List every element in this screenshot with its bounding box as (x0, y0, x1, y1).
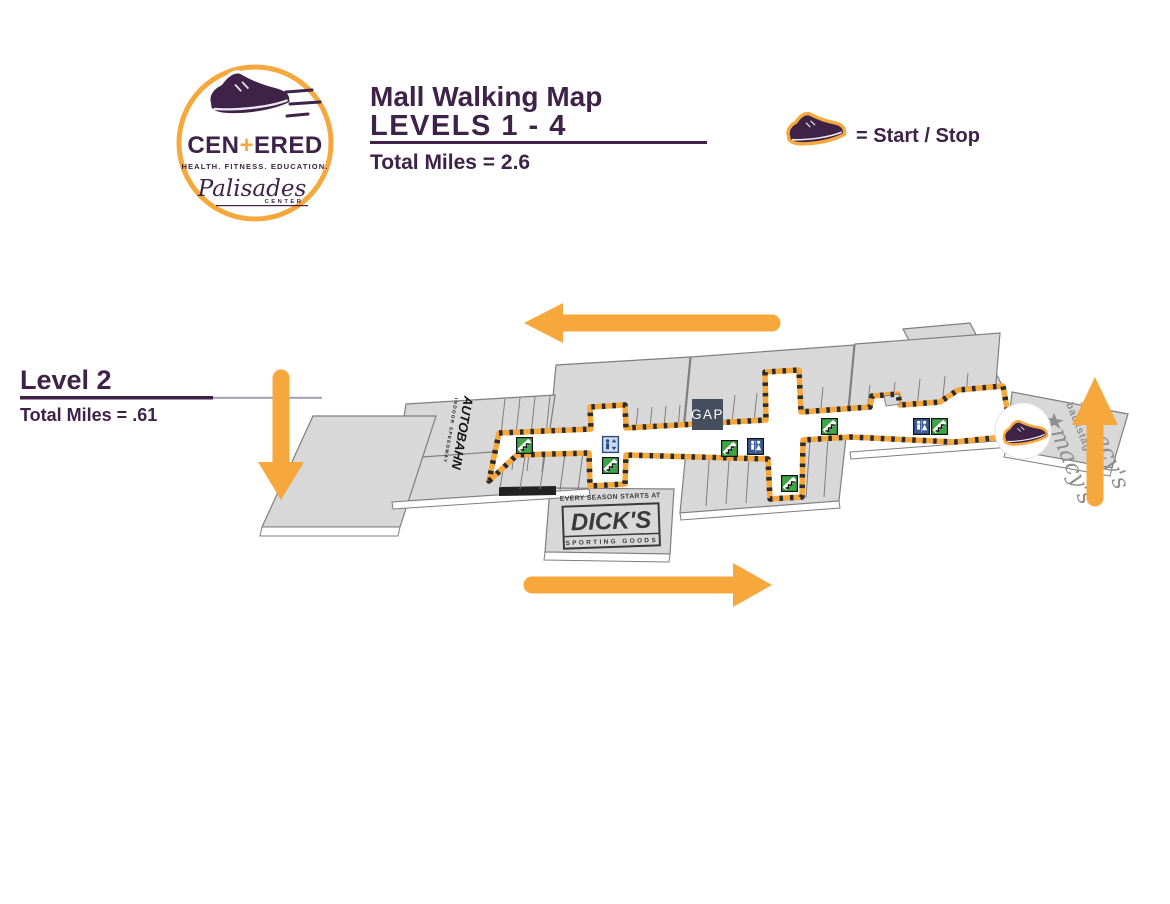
legend: = Start / Stop (788, 111, 980, 147)
arrow-left (524, 303, 772, 343)
title-divider (370, 141, 707, 144)
page-subtitle: LEVELS 1 - 4 (370, 110, 567, 142)
svg-text:DICK'S: DICK'S (570, 507, 651, 537)
start-stop-marker (995, 403, 1051, 459)
svg-text:GAP: GAP (691, 407, 724, 422)
escalator-icon (932, 419, 948, 435)
escalator-icon (722, 441, 738, 457)
page-title: Mall Walking Map (370, 81, 602, 112)
total-miles-overall: Total Miles = 2.6 (370, 151, 530, 174)
elevator-icon (603, 437, 619, 453)
mall-walking-map-page: CEN+ERED HEALTH. FITNESS. EDUCATION. Pal… (0, 0, 1170, 904)
brand-name: CEN+ERED (187, 132, 322, 159)
escalator-icon (517, 438, 533, 454)
map-edge-strip (260, 527, 400, 536)
centered-logo: CEN+ERED HEALTH. FITNESS. EDUCATION. Pal… (179, 67, 331, 219)
level-underline (20, 396, 213, 400)
center-underline (216, 205, 308, 206)
legend-label: = Start / Stop (856, 125, 980, 147)
legend-sneaker-icon (788, 111, 844, 145)
level-title: Level 2 (20, 365, 112, 395)
level-total-miles: Total Miles = .61 (20, 405, 157, 425)
floor-plan: AUTOBAHN INDOOR SPEEDWAY GAP EVERY SEASO… (260, 323, 1134, 562)
mall-walking-map: CEN+ERED HEALTH. FITNESS. EDUCATION. Pal… (0, 0, 1170, 904)
escalator-icon (822, 419, 838, 435)
center-word: CENTER (265, 199, 304, 205)
restroom-icon (748, 439, 764, 455)
arrow-right (532, 563, 772, 607)
restroom-icon (914, 419, 930, 435)
map-edge-shadow (499, 486, 556, 496)
brand-tagline: HEALTH. FITNESS. EDUCATION. (181, 162, 328, 171)
level-underline-ext (213, 397, 322, 399)
escalator-icon (782, 476, 798, 492)
escalator-icon (603, 458, 619, 474)
title-block: Mall Walking Map LEVELS 1 - 4 Total Mile… (370, 81, 707, 174)
map-edge-strip (544, 552, 670, 562)
store-label-gap: GAP (691, 399, 724, 430)
